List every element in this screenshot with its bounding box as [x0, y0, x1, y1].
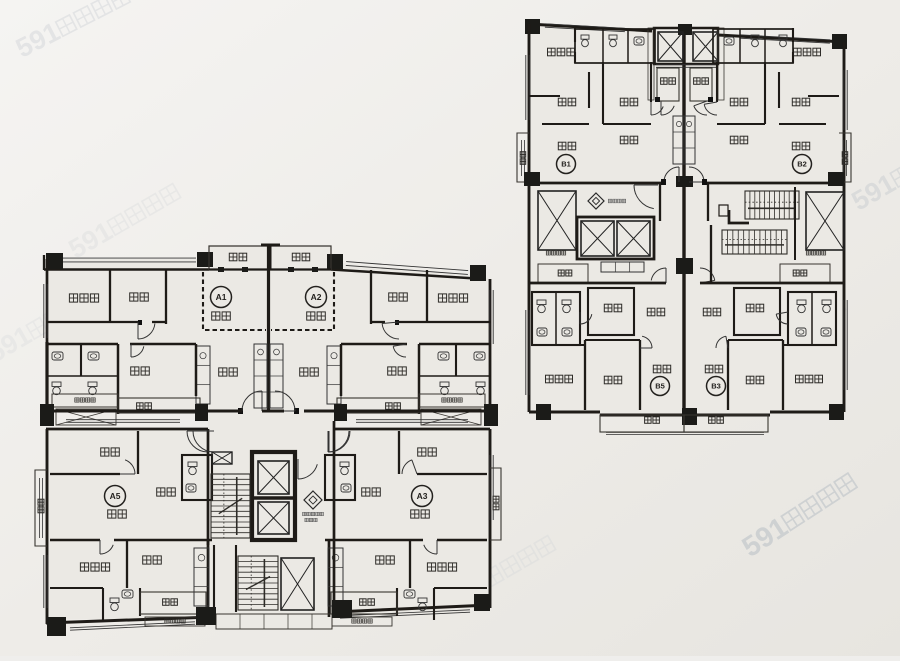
svg-text:A3: A3	[417, 491, 428, 501]
svg-text:B2: B2	[797, 160, 807, 169]
svg-text:A2: A2	[311, 292, 322, 302]
svg-text:B5: B5	[655, 382, 665, 391]
svg-text:A1: A1	[216, 292, 227, 302]
svg-text:A5: A5	[110, 491, 121, 501]
svg-text:B1: B1	[561, 160, 571, 169]
svg-text:B3: B3	[711, 382, 721, 391]
